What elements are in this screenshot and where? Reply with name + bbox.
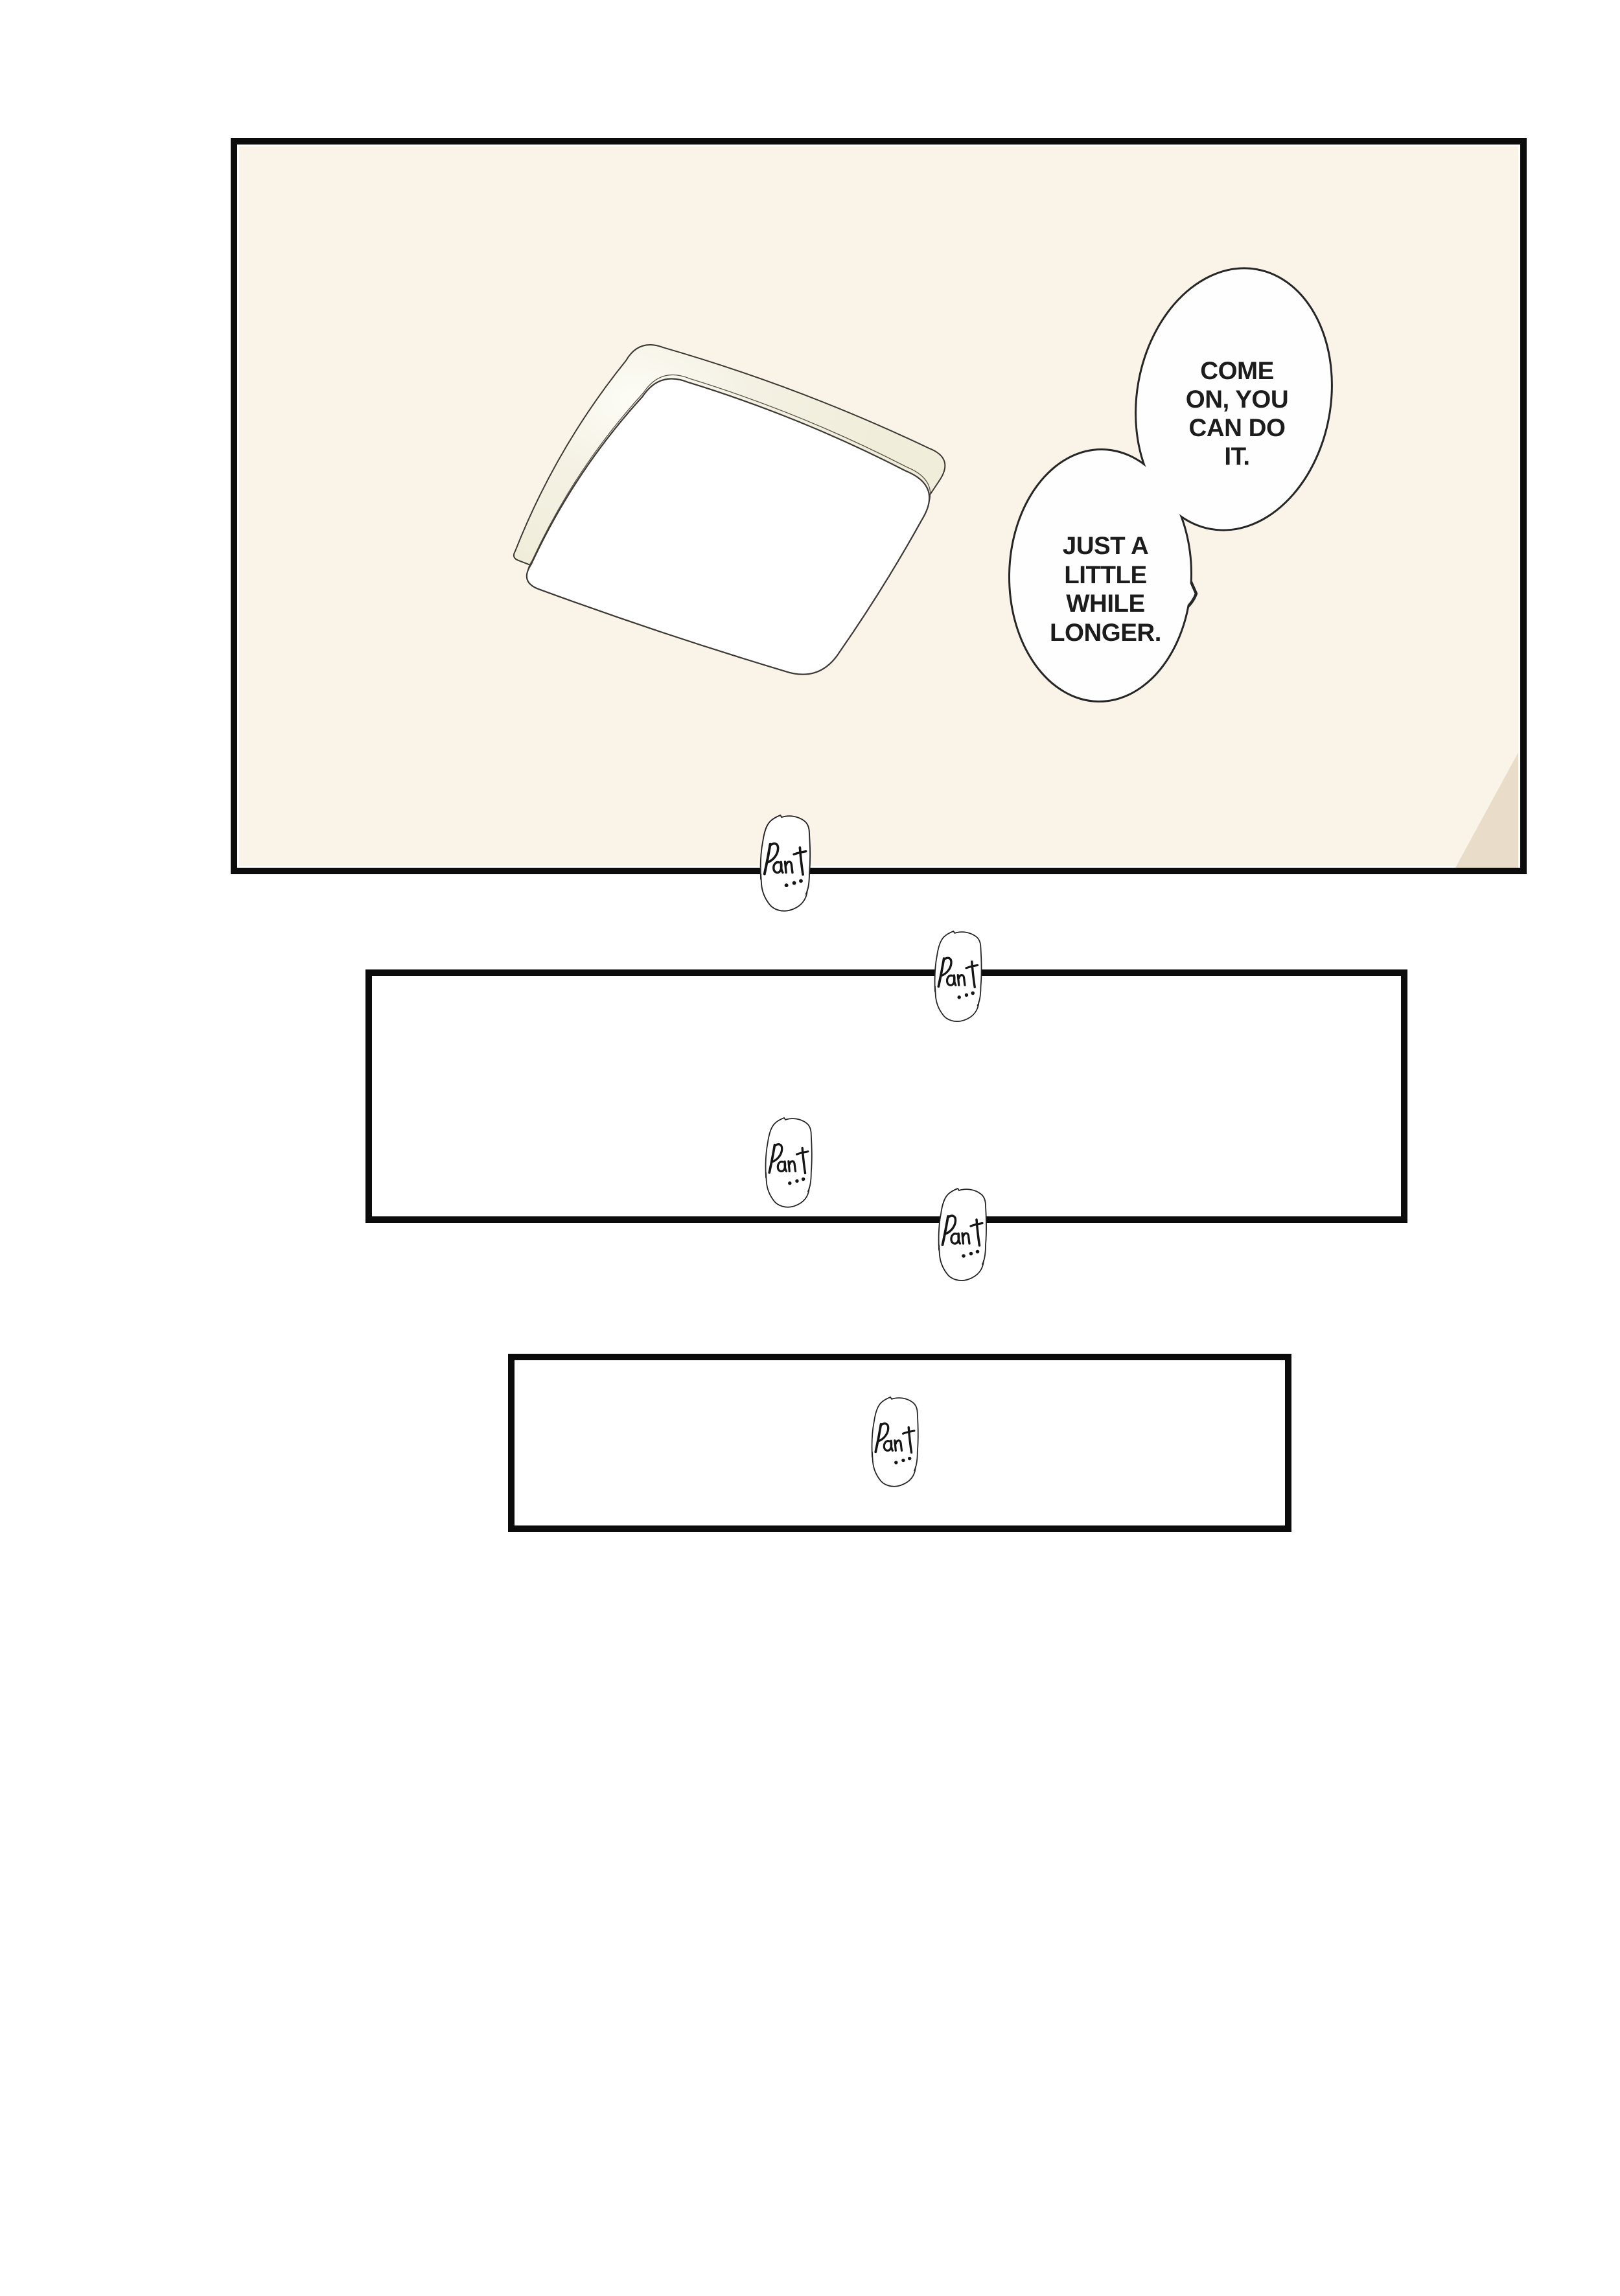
svg-text:IT.: IT. (1224, 443, 1249, 470)
svg-text:WHILE: WHILE (1066, 590, 1145, 618)
svg-text:LONGER.: LONGER. (1050, 619, 1161, 647)
svg-text:ON, YOU: ON, YOU (1186, 386, 1288, 413)
svg-text:LITTLE: LITTLE (1064, 561, 1146, 589)
svg-text:CAN DO: CAN DO (1189, 414, 1286, 442)
svg-text:JUST A: JUST A (1063, 532, 1149, 560)
svg-text:COME: COME (1200, 357, 1274, 385)
